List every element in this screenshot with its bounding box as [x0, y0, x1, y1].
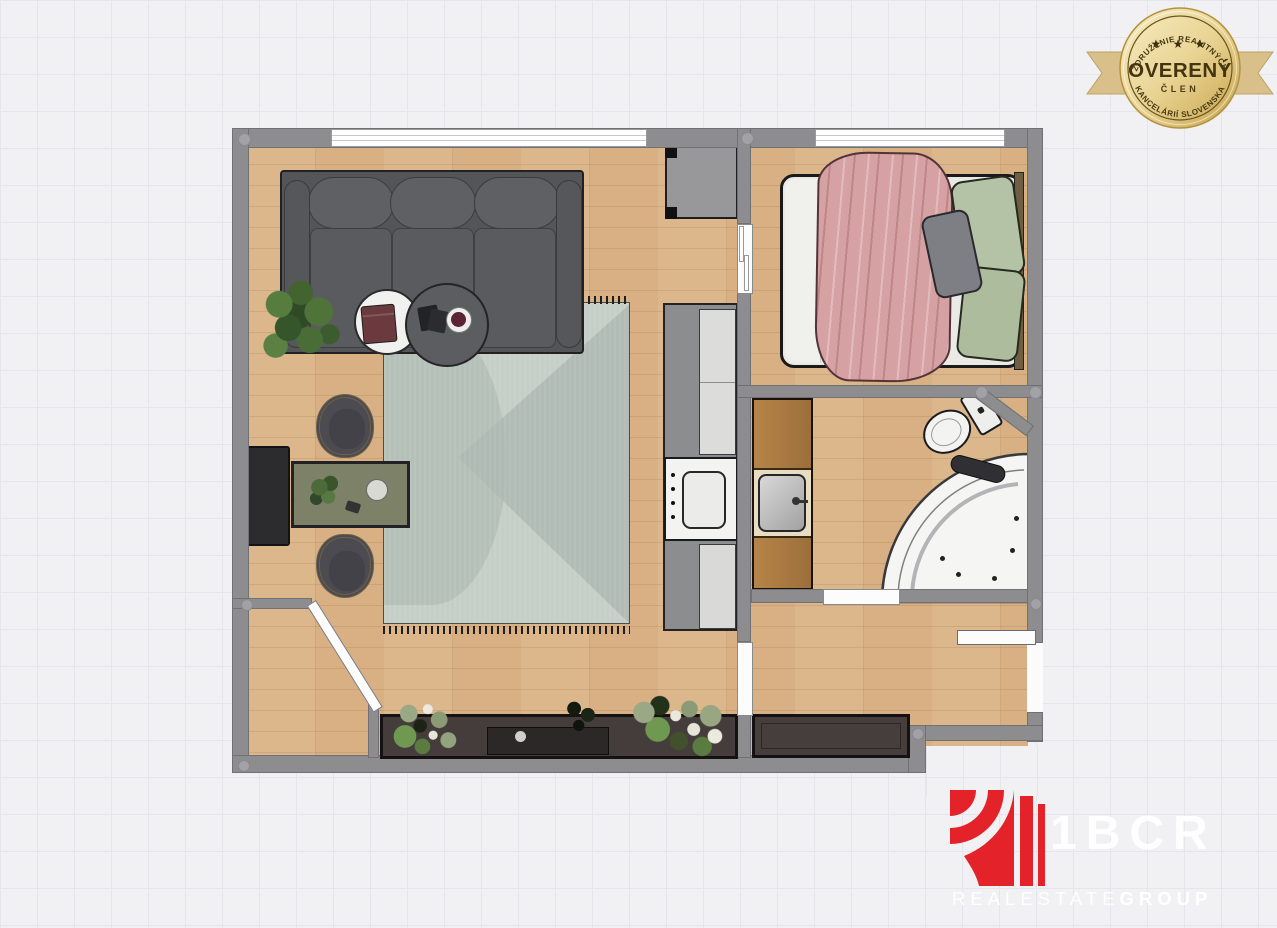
sofa-back-cushion	[308, 177, 394, 229]
table-dish	[366, 479, 388, 501]
kitchen-front-upper	[699, 309, 736, 455]
logo-tagline: REAL ESTATE GROUP	[952, 888, 1210, 910]
window-living	[331, 129, 647, 147]
stove-knob	[671, 501, 675, 505]
kitchen-counter	[663, 303, 738, 631]
sofa-armrest-right	[556, 180, 582, 348]
vanity-cabinet-top	[754, 400, 811, 470]
rattan-chair	[316, 534, 374, 598]
logo-word-group: GROUP	[1120, 888, 1213, 910]
hall-cabinet-panel	[761, 723, 901, 749]
tub-jet	[940, 556, 945, 561]
berries	[451, 312, 466, 327]
dining-table	[291, 461, 410, 528]
vanity-counter	[754, 470, 811, 536]
wall-joint	[975, 386, 988, 399]
wall-hall-bottom	[908, 725, 1043, 741]
vanity-cabinet-bottom	[754, 536, 811, 588]
sideboard-sprigs	[558, 696, 604, 738]
wall-joint	[912, 728, 924, 740]
sideboard-plant-right	[628, 692, 734, 760]
floor-plan-page: { "badge": { "arc_top": "ZDRUŽENIE REALI…	[0, 0, 1277, 928]
door-panel	[744, 255, 749, 291]
wall-bedroom-bathroom	[737, 385, 1043, 398]
wall-joint	[741, 132, 754, 145]
book	[360, 304, 397, 345]
certification-badge: ZDRUŽENIE REALITNÝCH ★ ★ ★ OVERENÝ ČLEN …	[1085, 0, 1275, 140]
stove	[664, 457, 738, 541]
entry-door-leaf	[957, 630, 1036, 645]
wall-joint	[241, 599, 253, 611]
wall-left	[232, 128, 249, 773]
stove-knob	[671, 515, 675, 519]
chair-seat	[329, 551, 365, 591]
wall-divider-lower	[737, 714, 751, 758]
logo-brand: 1BCR	[1050, 806, 1217, 861]
badge-subtitle: ČLEN	[1161, 83, 1200, 94]
wall-joint	[238, 760, 250, 772]
wall-divider-middle	[737, 292, 751, 642]
stove-knob	[671, 487, 675, 491]
badge-stars: ★ ★ ★	[1151, 37, 1210, 51]
door-living-hall	[737, 642, 753, 716]
wall-joint	[238, 133, 251, 146]
kitchen-front-lower	[699, 544, 736, 629]
entry-opening	[1027, 643, 1043, 712]
sideboard-plant-left	[386, 698, 462, 760]
potted-plant	[254, 276, 344, 370]
badge-title: OVERENÝ	[1128, 58, 1232, 82]
logo-word-estate: ESTATE	[1020, 888, 1119, 910]
agency-logo: 1BCR REAL ESTATE GROUP	[950, 788, 1277, 918]
cabinet-hinge	[665, 207, 677, 219]
sideboard-knob	[515, 731, 526, 742]
rattan-chair	[316, 394, 374, 458]
sliding-door-bedroom	[737, 224, 753, 294]
hall-cabinet	[752, 714, 910, 758]
table-plant	[304, 472, 348, 510]
wall-joint	[1029, 386, 1042, 399]
chair-seat	[329, 409, 365, 449]
kitchen-tall-cabinet	[665, 146, 738, 219]
door-bathroom	[823, 589, 900, 605]
window-bedroom	[815, 129, 1005, 147]
rug-fringe-bottom	[383, 626, 630, 634]
stove-knob	[671, 473, 675, 477]
vanity	[752, 398, 813, 590]
sofa-back-cushion	[474, 177, 560, 229]
faucet-spout	[798, 500, 808, 503]
logo-mark	[950, 788, 1045, 888]
logo-word-real: REAL	[952, 888, 1020, 910]
sofa-back-cushion	[390, 177, 476, 229]
sideboard-desk	[246, 446, 290, 546]
wall-joint	[1030, 598, 1042, 610]
oven-door	[682, 471, 726, 529]
